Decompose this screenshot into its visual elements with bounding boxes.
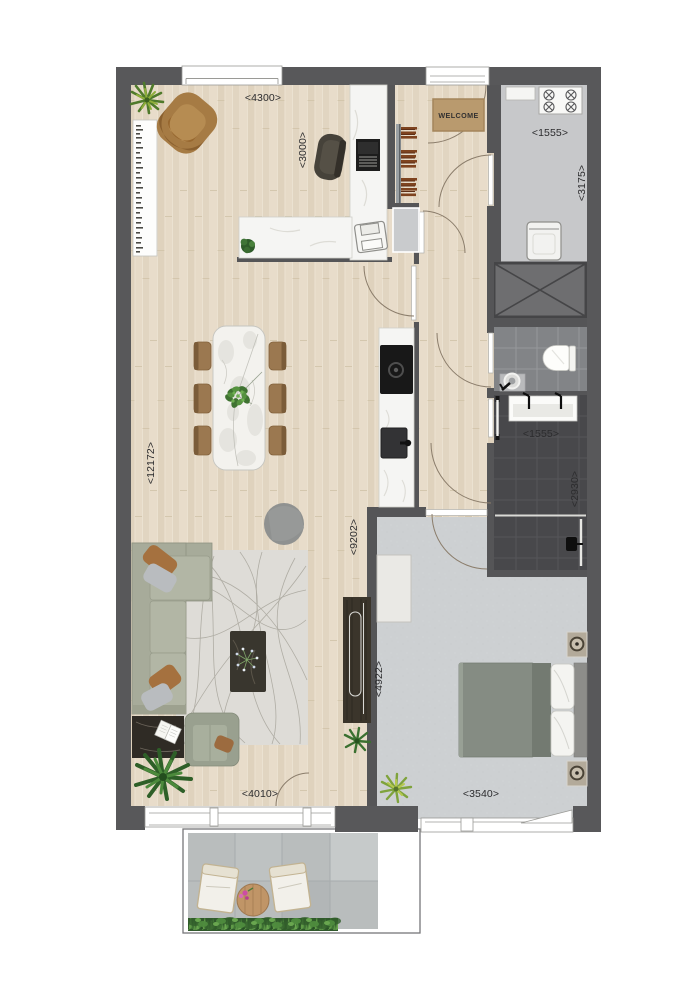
svg-text:<2930>: <2930> bbox=[569, 471, 581, 507]
svg-text:<12172>: <12172> bbox=[145, 442, 157, 484]
svg-text:<4010>: <4010> bbox=[242, 788, 278, 800]
svg-text:<3175>: <3175> bbox=[576, 165, 588, 201]
svg-text:<3000>: <3000> bbox=[297, 132, 309, 168]
svg-text:<1555>: <1555> bbox=[532, 127, 568, 139]
svg-text:<1555>: <1555> bbox=[523, 428, 559, 440]
svg-text:WELCOME: WELCOME bbox=[438, 111, 478, 120]
svg-text:<3540>: <3540> bbox=[463, 788, 499, 800]
svg-text:<4922>: <4922> bbox=[373, 661, 385, 697]
svg-text:<9202>: <9202> bbox=[348, 519, 360, 555]
svg-text:<4300>: <4300> bbox=[245, 92, 281, 104]
